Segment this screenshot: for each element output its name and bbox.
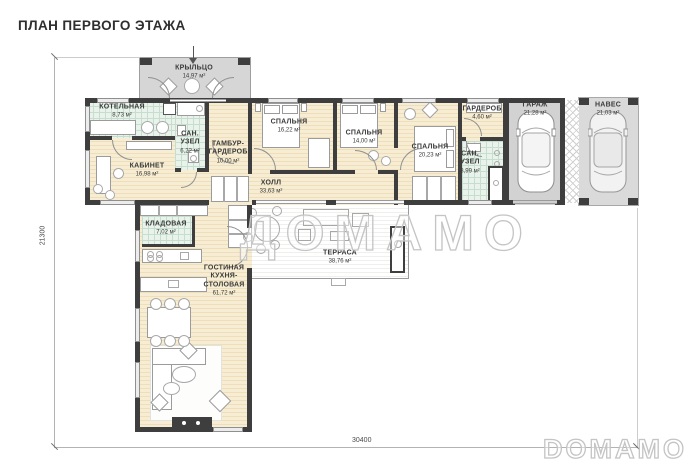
pillow-icon: [264, 105, 280, 114]
wall: [270, 170, 333, 174]
room-label-wardrobe: ГАРДЕРОБ4,60 м²: [462, 106, 501, 123]
wall: [462, 137, 466, 141]
chair-icon: [93, 184, 103, 194]
drain-icon: [493, 180, 499, 186]
porch-post: [140, 58, 152, 65]
chair-icon: [150, 335, 162, 347]
chair-icon: [164, 335, 176, 347]
window: [100, 200, 135, 205]
drain-icon: [196, 105, 203, 112]
entry-arrow-icon: [189, 58, 197, 64]
watermark-corner: DOMAMO: [543, 434, 687, 464]
window: [135, 308, 140, 342]
closet-divider: [236, 176, 238, 202]
dimension-label-left: 21300: [40, 211, 47, 261]
fireplace-dot: [182, 421, 186, 425]
chair-icon: [105, 190, 115, 200]
car-icon: [588, 109, 628, 195]
wall: [480, 137, 503, 141]
room-label-bath-1: САН. УЗЕЛ6,22 м²: [173, 131, 207, 156]
pillow-icon: [342, 105, 358, 114]
terrace-step: [331, 278, 346, 286]
room-label-bedroom-2: СПАЛЬНЯ14,00 м²: [346, 130, 383, 147]
closet-icon: [412, 176, 456, 202]
pillow-icon: [360, 105, 376, 114]
room-label-bedroom-1: СПАЛЬНЯ16,22 м²: [271, 119, 308, 136]
chair-icon: [404, 108, 416, 120]
window: [135, 362, 140, 398]
entry-door-glass: [170, 99, 226, 102]
window: [135, 230, 140, 262]
watermark-center: ДОМАМО: [240, 204, 533, 262]
window: [268, 98, 298, 103]
porch-post: [238, 58, 250, 65]
nightstand-icon: [380, 103, 386, 112]
pillow-icon: [282, 105, 298, 114]
chair-icon: [150, 298, 162, 310]
carport-post: [579, 198, 589, 205]
room-label-tambour: ТАМБУР-ГАРДЕРОБ10,00 м²: [205, 141, 251, 166]
room-label-bath-2: САН. УЗЕЛ8,99 м²: [452, 151, 488, 176]
nightstand-icon: [255, 103, 261, 112]
room-label-garage: ГАРАЖ21,28 м²: [522, 102, 547, 119]
room-label-pantry: КЛАДОВАЯ7,02 м²: [145, 221, 186, 238]
dimension-line-left: [54, 57, 55, 448]
wall: [333, 100, 337, 174]
dimension-label-bottom: 30400: [352, 437, 371, 444]
closet-divider: [223, 176, 225, 202]
wall: [394, 100, 398, 148]
window: [85, 150, 90, 188]
coffee-table-icon: [172, 366, 196, 383]
room-label-hall: ХОЛЛ33,63 м²: [260, 180, 283, 197]
room-label-boiler: КОТЕЛЬНАЯ8,73 м²: [99, 104, 145, 121]
counter-divider: [176, 205, 178, 216]
room-label-bedroom-3: СПАЛЬНЯ20,23 м²: [412, 144, 449, 161]
wall: [132, 136, 175, 140]
burner-icon: [147, 255, 154, 262]
washer-icon: [156, 121, 169, 134]
closet-divider: [426, 176, 428, 202]
wall: [175, 168, 181, 172]
carport-post: [579, 98, 589, 105]
nightstand-icon: [301, 103, 307, 112]
coffee-table-icon: [163, 382, 180, 395]
sink-icon: [180, 252, 189, 260]
page-title: ПЛАН ПЕРВОГО ЭТАЖА: [18, 18, 186, 33]
fireplace-dot: [196, 421, 200, 425]
carport-post: [628, 98, 638, 105]
boiler-unit-icon: [163, 103, 176, 115]
window: [85, 106, 90, 132]
counter-divider: [158, 205, 160, 216]
extension-line-right: [637, 208, 638, 448]
hatch-strip: [565, 100, 579, 203]
toilet-bowl-icon: [190, 155, 197, 162]
fixture-icon: [494, 150, 500, 156]
wardrobe-icon: [308, 138, 330, 168]
chair-icon: [113, 168, 124, 179]
carport-post: [628, 198, 638, 205]
room-label-carport: НАВЕС21,03 м²: [595, 102, 621, 119]
window: [213, 427, 243, 432]
closet-icon: [211, 176, 249, 202]
chair-icon: [164, 298, 176, 310]
chair-icon: [178, 298, 190, 310]
chair-icon: [178, 335, 190, 347]
window: [97, 98, 129, 103]
car-icon: [516, 109, 556, 195]
fireplace-icon: [172, 417, 212, 430]
table-icon: [381, 156, 391, 166]
shelf-icon: [126, 141, 172, 150]
wall: [135, 200, 209, 205]
wall: [333, 170, 355, 174]
window: [402, 98, 436, 103]
room-label-porch: КРЫЛЬЦО14,97 м²: [175, 65, 213, 82]
window: [342, 98, 374, 103]
floor-plan-page: ПЛАН ПЕРВОГО ЭТАЖА 21300 30400: [0, 0, 700, 467]
room-label-study: КАБИНЕТ16,98 м²: [130, 163, 165, 180]
wall: [192, 216, 195, 246]
wall: [142, 244, 195, 247]
window: [467, 98, 499, 103]
counter-icon: [90, 120, 136, 135]
wall: [503, 98, 509, 205]
island-sink-icon: [168, 280, 179, 288]
room-label-living: ГОСТИНАЯ КУХНЯ-СТОЛОВАЯ61,72 м²: [192, 264, 256, 297]
wall: [87, 136, 112, 140]
wall: [560, 98, 565, 205]
dining-table-icon: [147, 307, 191, 338]
wall: [197, 168, 209, 172]
washer-icon: [141, 121, 154, 134]
closet-divider: [440, 176, 442, 202]
burner-icon: [156, 255, 163, 262]
extension-line-top: [54, 57, 140, 58]
kitchen-counter-icon: [140, 205, 208, 216]
